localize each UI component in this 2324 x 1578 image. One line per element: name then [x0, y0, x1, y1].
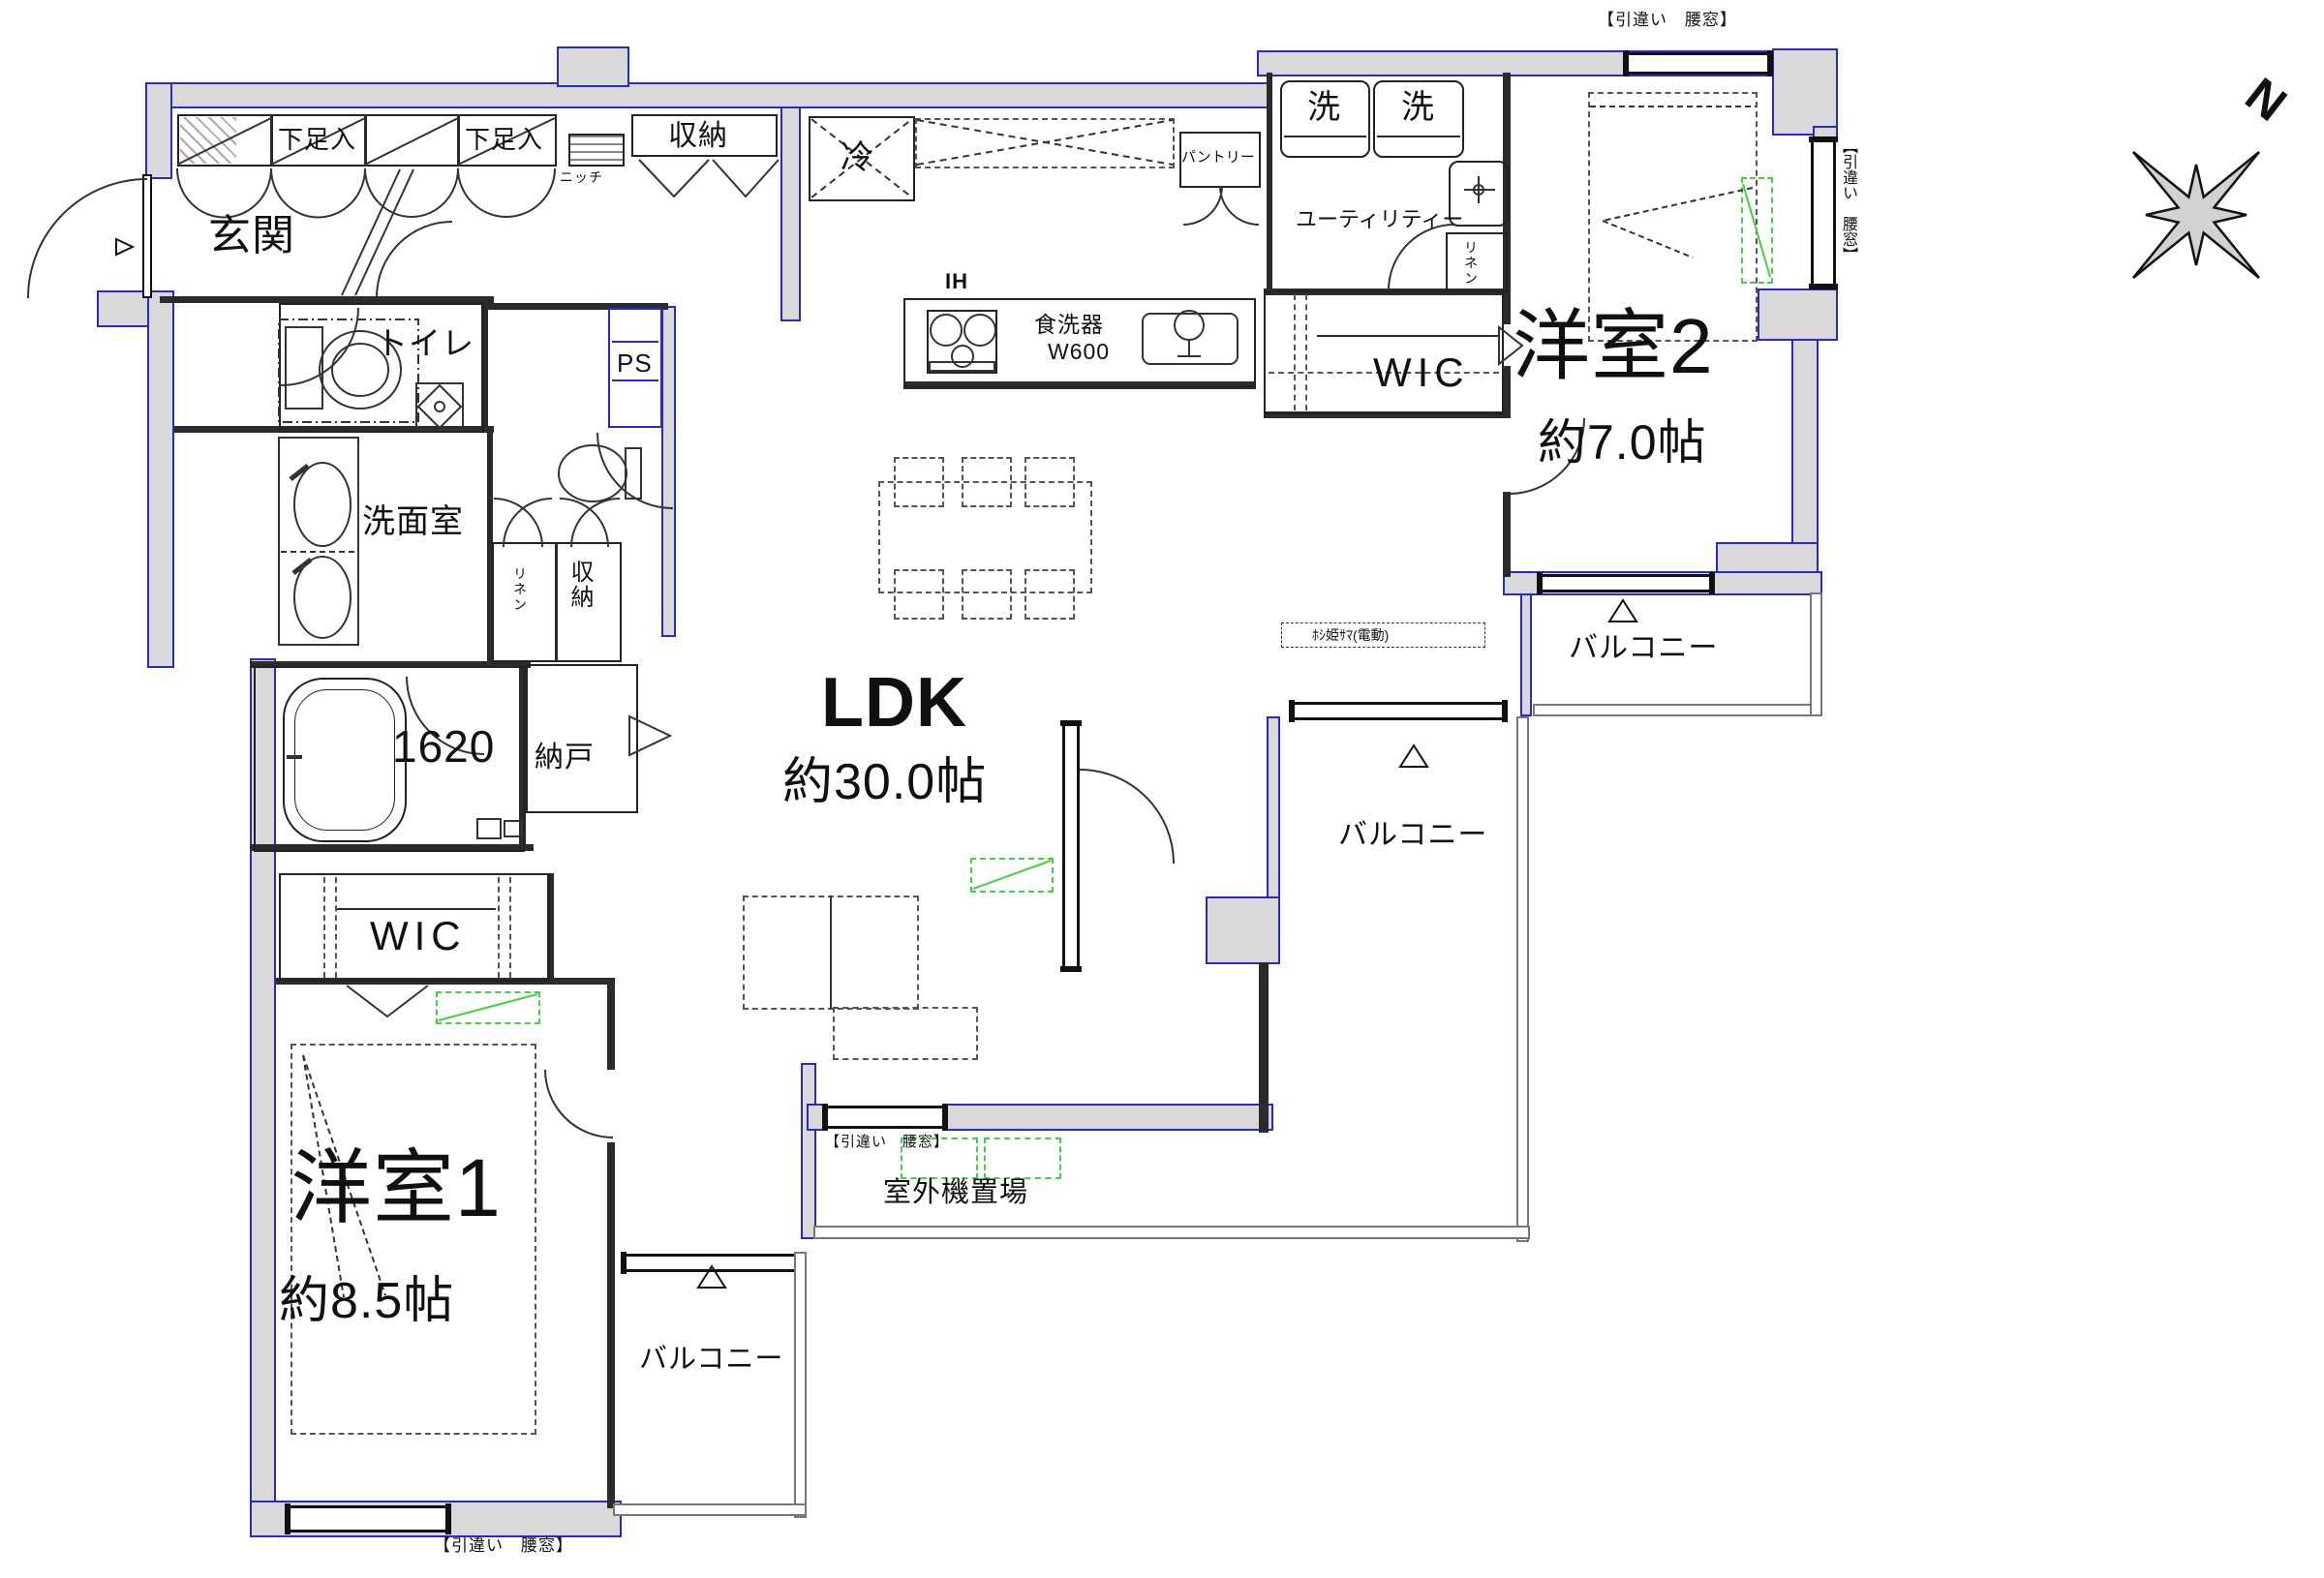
room-size-ldk: 約30.0帖: [782, 757, 987, 807]
wall-segment: [147, 290, 174, 668]
stove-box: [927, 310, 997, 374]
window-label-right: 【引違い 腰窓】: [1840, 138, 1855, 262]
label-fridge: 冷: [841, 141, 874, 174]
storeroom-box: [526, 664, 638, 813]
room-size-bedroom1: 約8.5帖: [279, 1276, 454, 1326]
window-bedroom2-right: [1811, 137, 1836, 288]
wall-segment: [1267, 716, 1280, 902]
wic1-hanger: [323, 877, 337, 978]
closet-folding-doors: [639, 160, 779, 197]
wall-pillar: [1206, 896, 1280, 964]
dining-chair: [1024, 569, 1075, 620]
window-bedroom2-south: [1538, 574, 1714, 592]
label-balcony: バルコニー: [1569, 634, 1718, 663]
pipe-space-line: [612, 341, 658, 343]
wall-segment: [661, 306, 676, 637]
window-label-ldk: 【引違い 腰窓】: [825, 1135, 949, 1149]
entry-step-lines: [342, 169, 413, 295]
compass-icon: [2133, 152, 2259, 278]
closet-label-hall: 収納: [668, 122, 728, 151]
railing: [613, 1503, 807, 1516]
wic1-folding-door: [347, 986, 428, 1017]
room-label-storeroom: 納戸: [535, 743, 595, 773]
label-dishwasher: 食洗器: [1034, 314, 1104, 336]
entry-door-arc: [28, 179, 147, 298]
entry-direction-icon: [116, 239, 133, 255]
window-label-top: 【引違い 腰窓】: [1598, 12, 1737, 28]
label-dishwasher-width: W600: [1048, 341, 1110, 363]
wic1-shelf: [337, 908, 496, 910]
window-bedroom1-south: [286, 1505, 450, 1532]
room-label-ldk: LDK: [821, 668, 967, 738]
dining-chair: [894, 569, 944, 620]
shoe-divider: [457, 114, 460, 167]
overhead-cabinet: [915, 118, 1175, 168]
label-ps: PS: [617, 350, 653, 376]
wall-interior: [1503, 492, 1511, 577]
railing: [1533, 704, 1821, 716]
railing: [1810, 592, 1822, 716]
sofa: [743, 895, 919, 1010]
bedroom1-door-arc: [545, 1070, 613, 1138]
shoe-hatch: [180, 117, 236, 164]
pipe-space-line: [612, 379, 658, 381]
green-marker: [436, 991, 540, 1024]
ac-outdoor-unit: [984, 1138, 1061, 1179]
wall-interior: [607, 978, 615, 1070]
closet-label-wash: 収納: [567, 560, 591, 610]
bed-bedroom1: [290, 1044, 536, 1435]
wall-pillar: [1772, 48, 1838, 136]
room-label-bedroom1: 洋室1: [290, 1147, 502, 1229]
label-bath-size: 1620: [392, 724, 495, 769]
room-label-toilet: トイレ: [376, 327, 474, 359]
label-hoshihime: ﾎｼ姫ｻﾏ(電動): [1312, 628, 1389, 642]
wic1-hanger: [498, 877, 511, 978]
wic2-hanger: [1294, 294, 1307, 410]
dining-chair: [962, 569, 1012, 620]
window-ldk-partition: [1062, 721, 1080, 971]
label-balcony: バルコニー: [1338, 821, 1487, 850]
wall-segment: [145, 82, 172, 179]
toilet-room: [279, 303, 484, 433]
window-corridor-south: [622, 1254, 806, 1272]
sofa-ottoman: [833, 1007, 978, 1060]
wall-pillar: [557, 46, 629, 87]
niche-box: [568, 134, 625, 167]
pantry-door-arcs: [1183, 186, 1259, 225]
ldk-partition-arc: [1080, 770, 1174, 864]
wash-closet-arcs: [494, 499, 620, 547]
dining-chair: [894, 457, 944, 507]
closet-label-linen2: リネン: [513, 566, 527, 613]
dining-chair: [1024, 457, 1075, 507]
compass-north-label: N: [2238, 70, 2296, 130]
wall-pillar: [1758, 288, 1838, 341]
room-label-washroom: 洗面室: [362, 505, 464, 538]
window-label-bottom: 【引違い 腰窓】: [434, 1537, 573, 1554]
room-label-genkan: 玄関: [208, 215, 295, 258]
shoe-divider: [364, 114, 367, 167]
room-label-wic1: WIC: [370, 916, 467, 956]
railing: [1516, 716, 1529, 1242]
room-size-bedroom2: 約7.0帖: [1538, 418, 1707, 467]
washer-line: [1377, 136, 1460, 137]
utility-door-arc: [1389, 225, 1454, 290]
wall-interior: [1267, 73, 1272, 295]
toilet2-icon: [559, 445, 641, 501]
window-ldk-east: [1290, 702, 1507, 720]
hall-door-arc: [377, 222, 452, 297]
window-bedroom2-top: [1624, 52, 1772, 75]
wall-segment: [944, 1104, 1273, 1131]
window-ldk-south: [823, 1106, 947, 1129]
washer-line: [1284, 136, 1366, 137]
railing: [813, 1226, 1530, 1239]
closet-label-shoe: 下足入: [278, 127, 356, 152]
label-washer: 洗: [1401, 91, 1435, 124]
label-washer: 洗: [1307, 91, 1341, 124]
green-marker: [1741, 177, 1773, 284]
railing: [794, 1252, 807, 1518]
wic2-rod: [1317, 335, 1499, 337]
wall-segment: [145, 82, 1269, 108]
shoe-door-arcs: [177, 168, 555, 218]
dining-chair: [962, 457, 1012, 507]
room-label-bedroom2: 洋室2: [1513, 308, 1714, 385]
wall-segment: [1520, 592, 1532, 716]
label-ih: IH: [945, 271, 968, 292]
label-pantry: パントリー: [1181, 150, 1255, 165]
bathtub-inner: [294, 689, 395, 831]
wash-closet-divider: [555, 542, 558, 662]
shoe-divider: [270, 114, 273, 167]
label-outdoor-unit: 室外機置場: [883, 1179, 1028, 1207]
entry-door-leaf: [142, 174, 152, 298]
wall-interior: [607, 1142, 615, 1508]
floorplan: 玄関 下足入 下足入 ニッチ 収納 冷 パントリー 洗 洗 ユーティリティー リ…: [0, 0, 2324, 1578]
washroom-sinks: [279, 438, 358, 645]
wall-interior: [160, 296, 494, 303]
room-label-wic2: WIC: [1373, 352, 1470, 393]
closet-label-shoe: 下足入: [465, 127, 543, 152]
wall-interior: [1503, 366, 1511, 416]
room-label-utility: ユーティリティー: [1296, 209, 1463, 230]
label-niche: ニッチ: [560, 170, 603, 184]
closet-label-linen: リネン: [1464, 240, 1478, 287]
label-balcony: バルコニー: [639, 1346, 783, 1374]
wall-segment: [1791, 339, 1819, 546]
green-marker: [970, 858, 1054, 893]
wall-segment: [780, 106, 801, 321]
wall-segment: [801, 1063, 816, 1239]
wall-interior: [1259, 962, 1269, 1133]
